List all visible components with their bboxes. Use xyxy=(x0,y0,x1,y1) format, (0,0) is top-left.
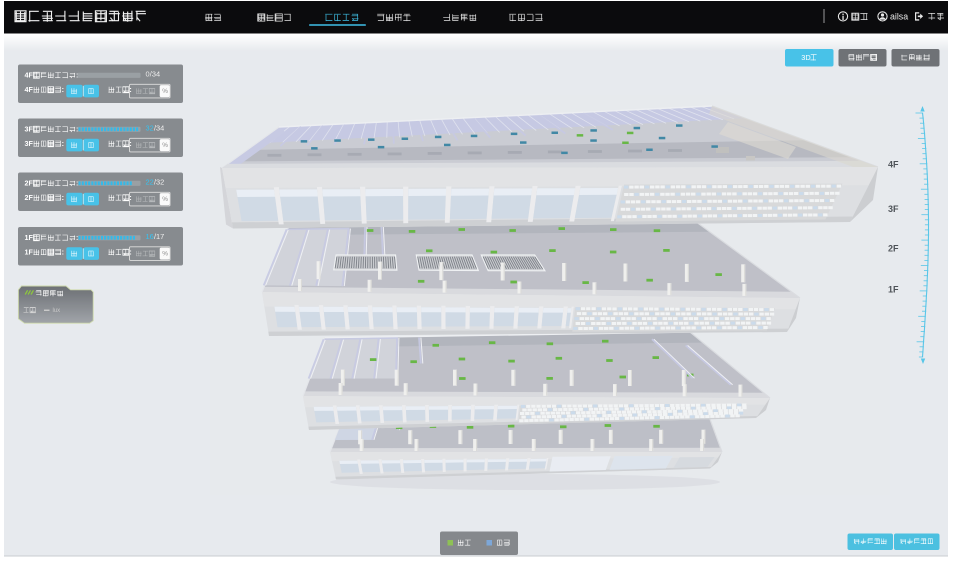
svg-text:4F: 4F xyxy=(25,71,34,80)
svg-text:2F: 2F xyxy=(25,193,34,202)
svg-text:%: % xyxy=(162,196,168,203)
svg-text:32: 32 xyxy=(146,124,154,133)
svg-text:lux: lux xyxy=(53,308,61,314)
svg-text:1F: 1F xyxy=(25,248,34,257)
svg-text:3D: 3D xyxy=(801,53,810,62)
svg-text::: : xyxy=(62,193,64,202)
svg-text:3F: 3F xyxy=(25,139,34,148)
svg-text::: : xyxy=(62,248,64,257)
svg-text:/34: /34 xyxy=(154,124,164,133)
svg-text:/17: /17 xyxy=(154,232,164,241)
svg-text:%: % xyxy=(162,251,168,258)
svg-text:16: 16 xyxy=(146,232,154,241)
svg-text:3F: 3F xyxy=(25,125,34,134)
svg-text:22: 22 xyxy=(146,178,154,187)
svg-text:%: % xyxy=(162,142,168,149)
svg-text:ailsa: ailsa xyxy=(890,12,908,22)
svg-text:1F: 1F xyxy=(25,233,34,242)
svg-text:%: % xyxy=(162,88,168,95)
svg-text::: : xyxy=(62,139,64,148)
svg-text:2F: 2F xyxy=(25,179,34,188)
svg-text:/34: /34 xyxy=(150,70,160,79)
svg-text:4F: 4F xyxy=(25,85,34,94)
svg-text:/32: /32 xyxy=(154,178,164,187)
svg-text::: : xyxy=(62,85,64,94)
